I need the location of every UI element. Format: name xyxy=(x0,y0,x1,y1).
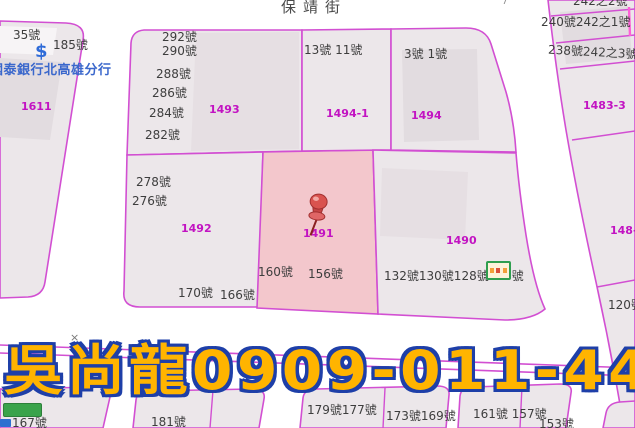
house-number-35: 35號 xyxy=(13,29,40,42)
parcel-bottom-e[interactable] xyxy=(603,401,635,428)
house-number-292: 292號 xyxy=(162,31,197,44)
house-number-278: 278號 xyxy=(136,176,171,189)
parcel-label-1490: 1490 xyxy=(446,235,477,247)
house-number-161-157: 161號 157號 xyxy=(473,408,547,421)
house-number-282: 282號 xyxy=(145,129,180,142)
house-number-276: 276號 xyxy=(132,195,167,208)
house-number-242-2: 242之2號 xyxy=(573,0,628,8)
pushpin-icon[interactable] xyxy=(300,190,333,239)
street-name-label: 保靖街 xyxy=(281,0,347,16)
house-number-181: 181號 xyxy=(151,416,186,428)
small-number-label: 7 xyxy=(502,0,508,8)
house-number-240-242-1: 240號242之1號 xyxy=(541,16,630,29)
building-shape xyxy=(380,168,468,240)
store-icon[interactable] xyxy=(486,261,511,280)
green-sign-icon[interactable] xyxy=(3,403,42,417)
store-icon-stripe xyxy=(496,268,500,273)
house-number-167: 167號 xyxy=(12,417,47,428)
parcel-label-1493: 1493 xyxy=(209,104,240,116)
blue-building-icon xyxy=(0,419,11,427)
store-icon-stripe xyxy=(490,268,494,273)
house-number-120: 120號 xyxy=(608,299,635,312)
bank-name-label: 國泰銀行北高雄分行 xyxy=(0,64,112,78)
house-number-13-11: 13號 11號 xyxy=(304,44,362,57)
house-number-160: 160號 xyxy=(258,266,293,279)
parcel-label-1494-1: 1494-1 xyxy=(326,108,369,120)
house-number-156: 156號 xyxy=(308,268,343,281)
parcel-label-1494: 1494 xyxy=(411,110,442,122)
parcel-label-148: 148- xyxy=(610,225,635,237)
store-icon-stripe xyxy=(503,268,507,273)
parcel-label-1611: 1611 xyxy=(21,101,52,113)
parcel-label-1483-3: 1483-3 xyxy=(583,100,626,112)
overlay-contact-text: 吳尚龍0909-011-448 xyxy=(4,341,635,400)
house-number-286: 286號 xyxy=(152,87,187,100)
building-shape xyxy=(402,49,479,142)
house-number-185: 185號 xyxy=(53,39,88,52)
bank-dollar-icon[interactable]: $ xyxy=(35,42,48,62)
house-number-173-169: 173號169號 xyxy=(386,410,456,423)
house-number-288: 288號 xyxy=(156,68,191,81)
house-number-166: 166號 xyxy=(220,289,255,302)
house-number-290: 290號 xyxy=(162,45,197,58)
house-number-153: 153號 xyxy=(539,418,574,428)
house-number-170: 170號 xyxy=(178,287,213,300)
house-number-3-1: 3號 1號 xyxy=(404,48,447,61)
house-number-179-177: 179號177號 xyxy=(307,404,377,417)
building-shape xyxy=(191,32,299,151)
map-canvas[interactable]: 保靖街 7 × 7 $ 國泰銀行北高雄分行 1611 1493 1494-1 1… xyxy=(0,0,635,428)
house-number-284: 284號 xyxy=(149,107,184,120)
parcel-label-1492: 1492 xyxy=(181,223,212,235)
